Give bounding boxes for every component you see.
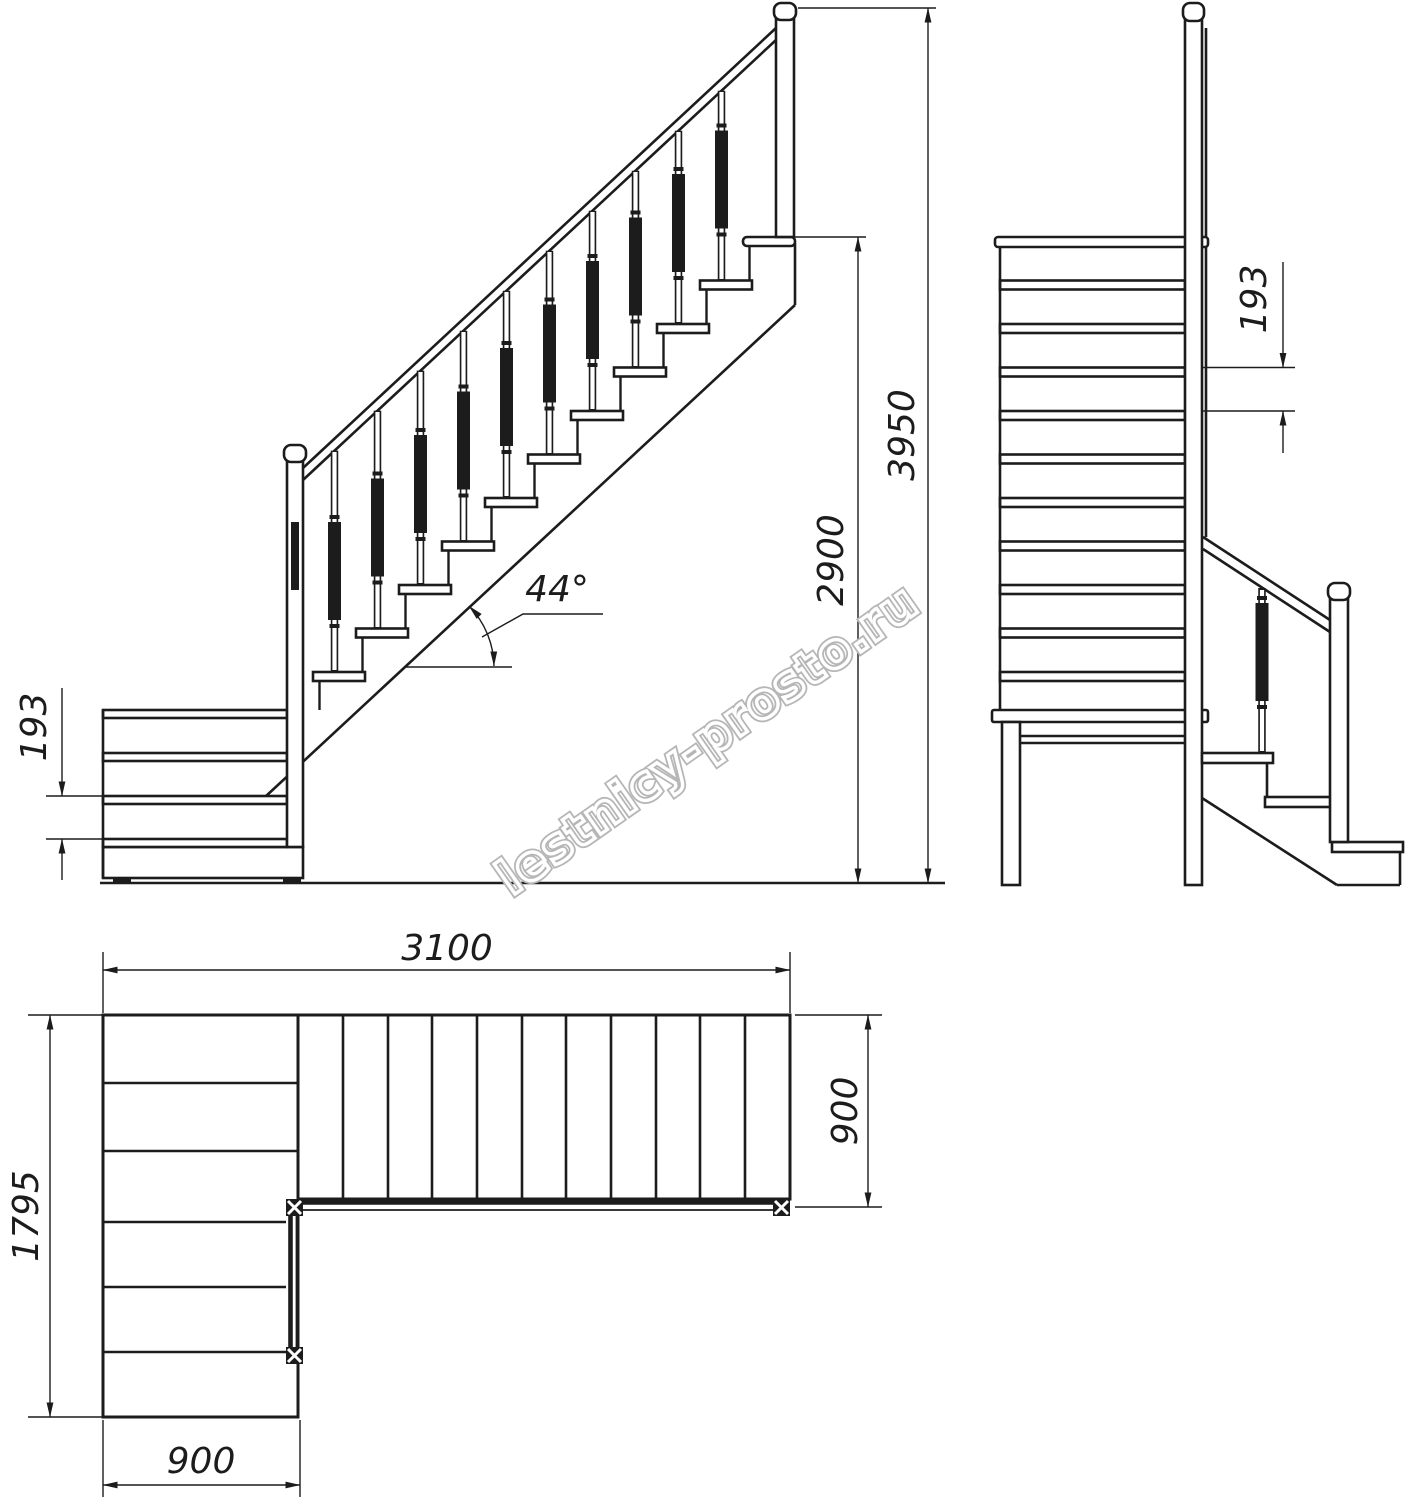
foot — [113, 878, 131, 883]
front-elevation-view — [992, 3, 1403, 885]
dim-flight-height: 2900 — [795, 237, 866, 883]
drawing-canvas: 3950 2900 193 44° 193 3100 — [0, 0, 1405, 1500]
lower-flight-plan — [103, 1015, 298, 1417]
dim-label-193-side: 193 — [14, 693, 55, 762]
dim-riser-front: 193 — [1203, 262, 1295, 453]
plan-view — [103, 1015, 790, 1417]
top-newel-post — [774, 3, 796, 237]
platform-structure — [992, 710, 1208, 885]
plinth — [103, 847, 303, 878]
lower-flight-stack-side — [103, 710, 303, 883]
dim-total-height: 3950 — [798, 8, 936, 883]
dim-plan-flight-width: 900 — [795, 1015, 882, 1207]
dim-label-3950: 3950 — [882, 389, 923, 481]
dim-plan-lower-length: 1795 — [6, 1015, 103, 1417]
plan-handrails — [291, 1203, 774, 1348]
plan-upper-treads — [343, 1015, 745, 1199]
lower-flight-steps-front — [1202, 753, 1403, 885]
dim-label-900-bottom: 900 — [167, 1441, 236, 1482]
dim-label-2900: 2900 — [811, 514, 852, 606]
landing-tread — [743, 237, 795, 246]
upper-flight-plan — [298, 1015, 790, 1199]
side-elevation-view — [100, 3, 945, 883]
left-leg — [1002, 722, 1020, 885]
lower-newel-post — [284, 445, 306, 847]
watermark: lestnicy-prosto.ru lestnicy-prosto.ru — [487, 573, 929, 906]
dim-riser-side: 193 — [14, 688, 102, 880]
dim-label-900-right: 900 — [825, 1077, 866, 1146]
foot — [283, 878, 301, 883]
upper-flight-stack-front — [995, 237, 1208, 710]
staircase-technical-drawing: 3950 2900 193 44° 193 3100 — [0, 0, 1405, 1500]
dim-label-1795: 1795 — [6, 1170, 47, 1262]
watermark-core: lestnicy-prosto.ru — [487, 573, 929, 906]
dim-label-3100: 3100 — [401, 928, 493, 969]
risers — [320, 246, 750, 710]
plan-newel-posts — [286, 1199, 790, 1364]
baluster-front — [1256, 588, 1269, 753]
dim-label-angle: 44° — [525, 569, 589, 610]
dim-plan-length: 3100 — [103, 928, 790, 1013]
plan-lower-treads — [103, 1083, 298, 1352]
dim-plan-lower-width: 900 — [103, 1420, 300, 1497]
dim-label-193-front: 193 — [1234, 265, 1275, 334]
right-newel-post-front — [1328, 583, 1350, 842]
